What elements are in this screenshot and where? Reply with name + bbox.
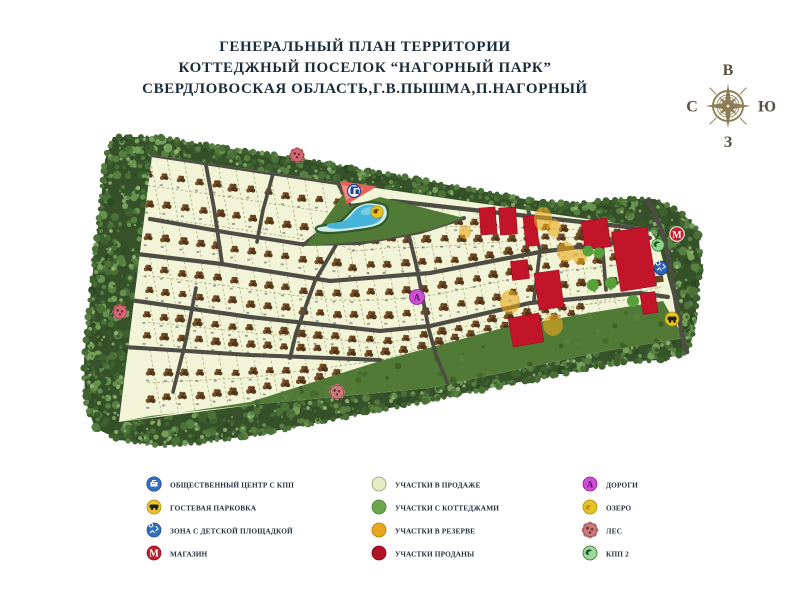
svg-text:Ю: Ю	[758, 99, 776, 116]
svg-text:УЧАСТКИ С КОТТЕДЖАМИ: УЧАСТКИ С КОТТЕДЖАМИ	[395, 504, 499, 513]
svg-text:А: А	[414, 293, 421, 303]
svg-text:ОЗЕРО: ОЗЕРО	[606, 504, 631, 513]
svg-text:ГОСТЕВАЯ ПАРКОВКА: ГОСТЕВАЯ ПАРКОВКА	[170, 504, 257, 513]
svg-text:КПП 2: КПП 2	[606, 550, 629, 559]
svg-text:М: М	[149, 549, 159, 560]
svg-text:ДОРОГИ: ДОРОГИ	[606, 481, 638, 490]
svg-text:ЗОНА С ДЕТСКОЙ ПЛОЩАДКОЙ: ЗОНА С ДЕТСКОЙ ПЛОЩАДКОЙ	[170, 527, 293, 536]
svg-text:А: А	[587, 480, 594, 490]
svg-text:УЧАСТКИ В РЕЗЕРВЕ: УЧАСТКИ В РЕЗЕРВЕ	[395, 527, 475, 536]
svg-text:С: С	[686, 99, 698, 116]
svg-text:З: З	[724, 134, 733, 151]
svg-text:ЛЕС: ЛЕС	[606, 527, 622, 536]
svg-text:ОБЩЕСТВЕННЫЙ ЦЕНТР С КПП: ОБЩЕСТВЕННЫЙ ЦЕНТР С КПП	[170, 481, 294, 490]
svg-text:М: М	[672, 230, 682, 241]
svg-text:В: В	[723, 62, 734, 79]
svg-text:УЧАСТКИ ПРОДАНЫ: УЧАСТКИ ПРОДАНЫ	[395, 550, 475, 559]
svg-text:УЧАСТКИ В ПРОДАЖЕ: УЧАСТКИ В ПРОДАЖЕ	[395, 481, 481, 490]
svg-text:МАГАЗИН: МАГАЗИН	[170, 550, 208, 559]
